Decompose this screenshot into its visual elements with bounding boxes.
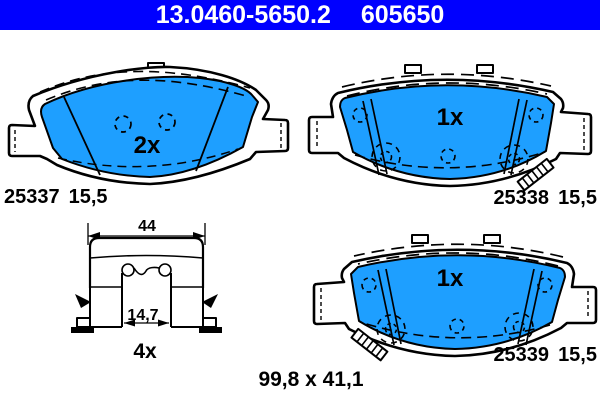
clip-inner-width-dimension: 14,7 bbox=[127, 308, 158, 324]
quantity-label-pad-25337: 2x bbox=[134, 134, 161, 158]
clip-width-dimension: 44 bbox=[138, 219, 156, 235]
part-number: 25338 bbox=[493, 188, 549, 208]
part-label-25338: 2533815,5 bbox=[493, 188, 597, 208]
thickness-value: 15,5 bbox=[558, 345, 597, 365]
reference-number: 605650 bbox=[361, 3, 444, 28]
quantity-label-clip: 4x bbox=[133, 341, 156, 362]
catalog-number: 13.0460-5650.2 bbox=[156, 3, 331, 28]
header-bar: 13.0460-5650.2 605650 bbox=[0, 0, 600, 30]
brake-pad-diagram-25337 bbox=[0, 55, 300, 205]
part-number: 25337 bbox=[4, 187, 60, 207]
thickness-value: 15,5 bbox=[69, 187, 108, 207]
part-label-25337: 2533715,5 bbox=[4, 187, 108, 207]
quantity-label-pad-25339: 1x bbox=[437, 267, 464, 291]
technical-drawing-sheet: 13.0460-5650.2 605650 bbox=[0, 0, 600, 400]
part-number: 25339 bbox=[493, 345, 549, 365]
quantity-label-pad-25338: 1x bbox=[437, 106, 464, 130]
overall-dimensions: 99,8 x 41,1 bbox=[258, 369, 363, 390]
thickness-value: 15,5 bbox=[558, 188, 597, 208]
part-label-25339: 2533915,5 bbox=[493, 345, 597, 365]
